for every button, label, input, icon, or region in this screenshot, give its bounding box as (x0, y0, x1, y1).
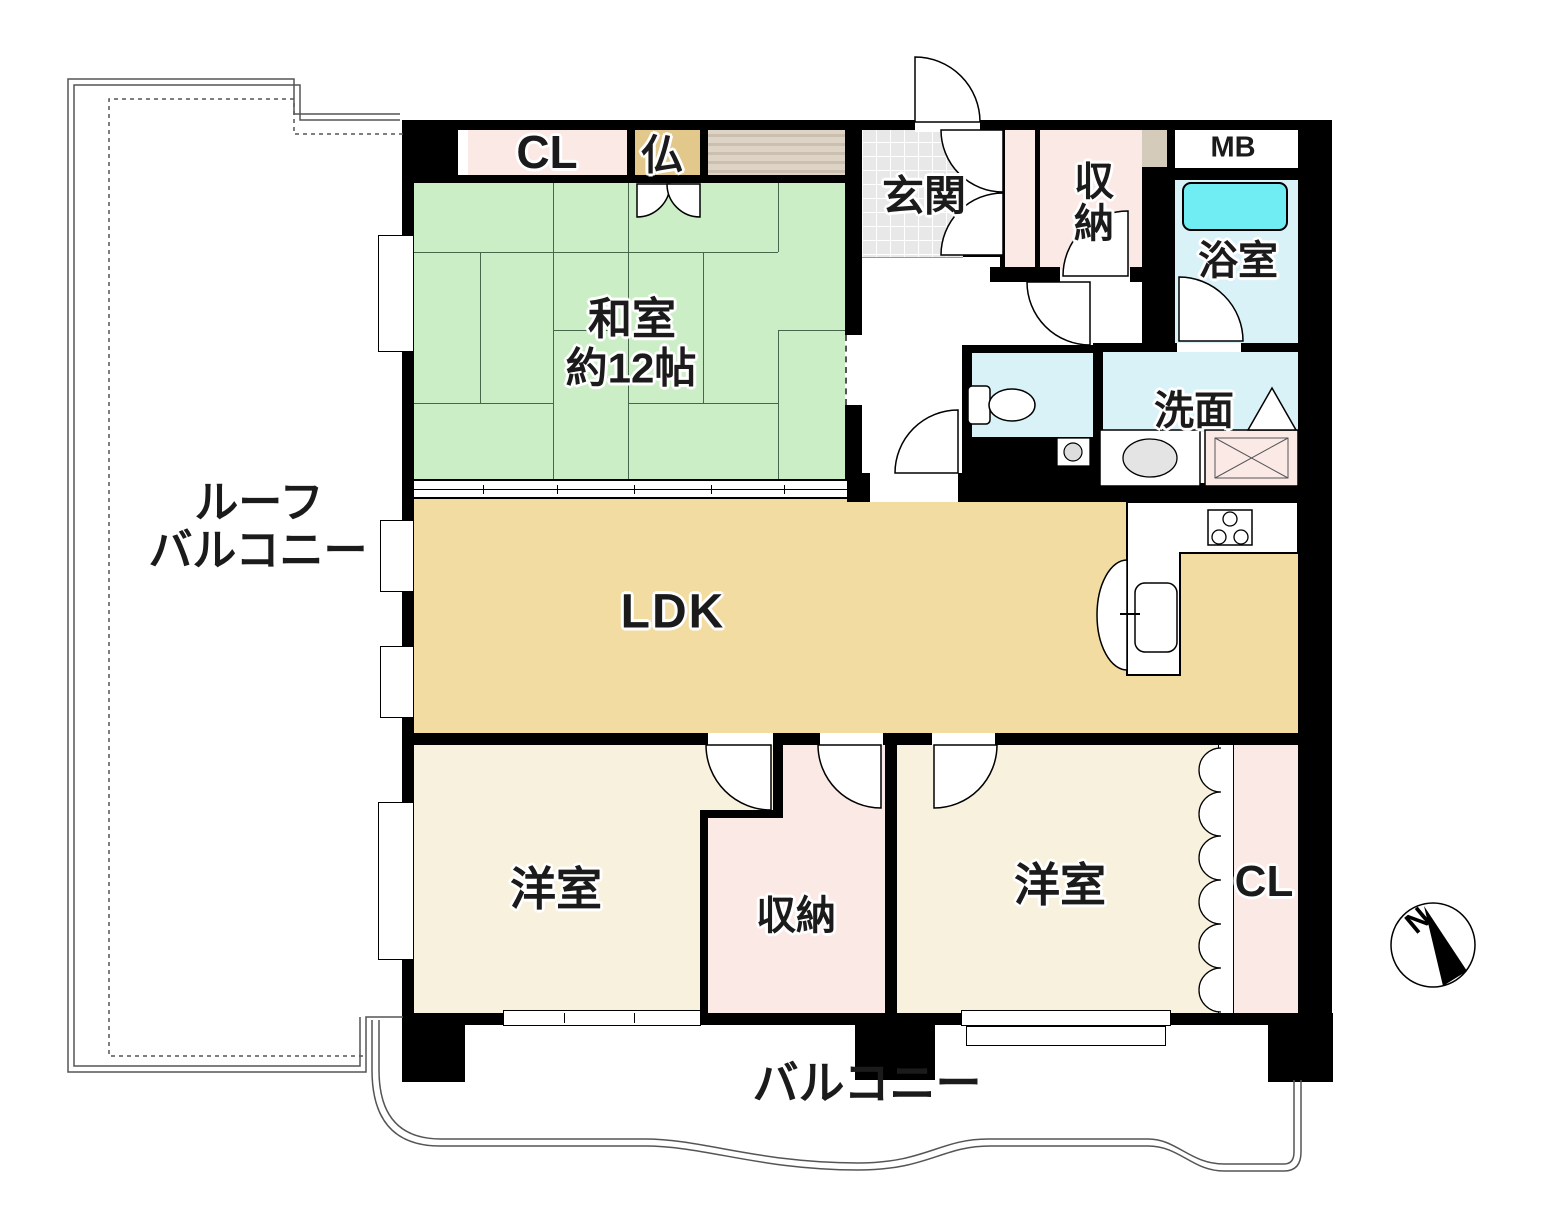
vanity-unit (1100, 430, 1200, 486)
room-label-storage-bottom: 収納 (756, 883, 836, 941)
door-storage-bottom (818, 745, 881, 808)
door-washroom (1027, 282, 1090, 345)
door-hall (895, 410, 958, 473)
room-label-balcony: バルコニー (752, 1047, 981, 1113)
room-label-ldk: LDK (621, 585, 726, 640)
door-bath (1179, 277, 1243, 341)
compass: N (1391, 901, 1475, 987)
room-label-bedroom-right: 洋室 (1014, 849, 1106, 915)
small-fixture (1057, 438, 1090, 466)
room-label-meter-box: MB (1210, 132, 1255, 165)
door-bedroom-left (706, 745, 771, 810)
washroom-triangle (1248, 388, 1296, 430)
room-label-washroom: 洗面 (1154, 378, 1234, 436)
room-label-bedroom-left: 洋室 (510, 853, 602, 919)
door-butsudan-left (637, 184, 670, 217)
door-bedroom-right (934, 745, 997, 808)
folding-doors (1199, 748, 1221, 1012)
floor-plan: N ルーフ バルコニー CL 仏 玄関 収納 MB 浴室 洗面 和室 約12帖 … (0, 0, 1555, 1227)
room-label-bathroom: 浴室 (1198, 228, 1278, 286)
kitchen-counter (1097, 502, 1298, 675)
kitchen-sink (1135, 583, 1177, 652)
room-label-closet-bottom: CL (1235, 857, 1294, 907)
room-label-butsudan: 仏 (641, 122, 683, 183)
toilet-fixture (968, 386, 1035, 424)
door-butsudan-right (667, 184, 700, 217)
room-label-genkan: 玄関 (882, 163, 966, 224)
room-label-closet-top: CL (516, 125, 577, 179)
washer-pan (1205, 430, 1298, 486)
room-label-washitsu-size: 約12帖 (566, 335, 697, 396)
bathtub (1183, 183, 1287, 230)
plan-linework: N (0, 0, 1555, 1227)
room-label-roof-balcony-line2: バルコニー (148, 514, 367, 578)
door-entrance (915, 57, 980, 122)
room-label-storage-top: 収納 (1061, 160, 1119, 244)
